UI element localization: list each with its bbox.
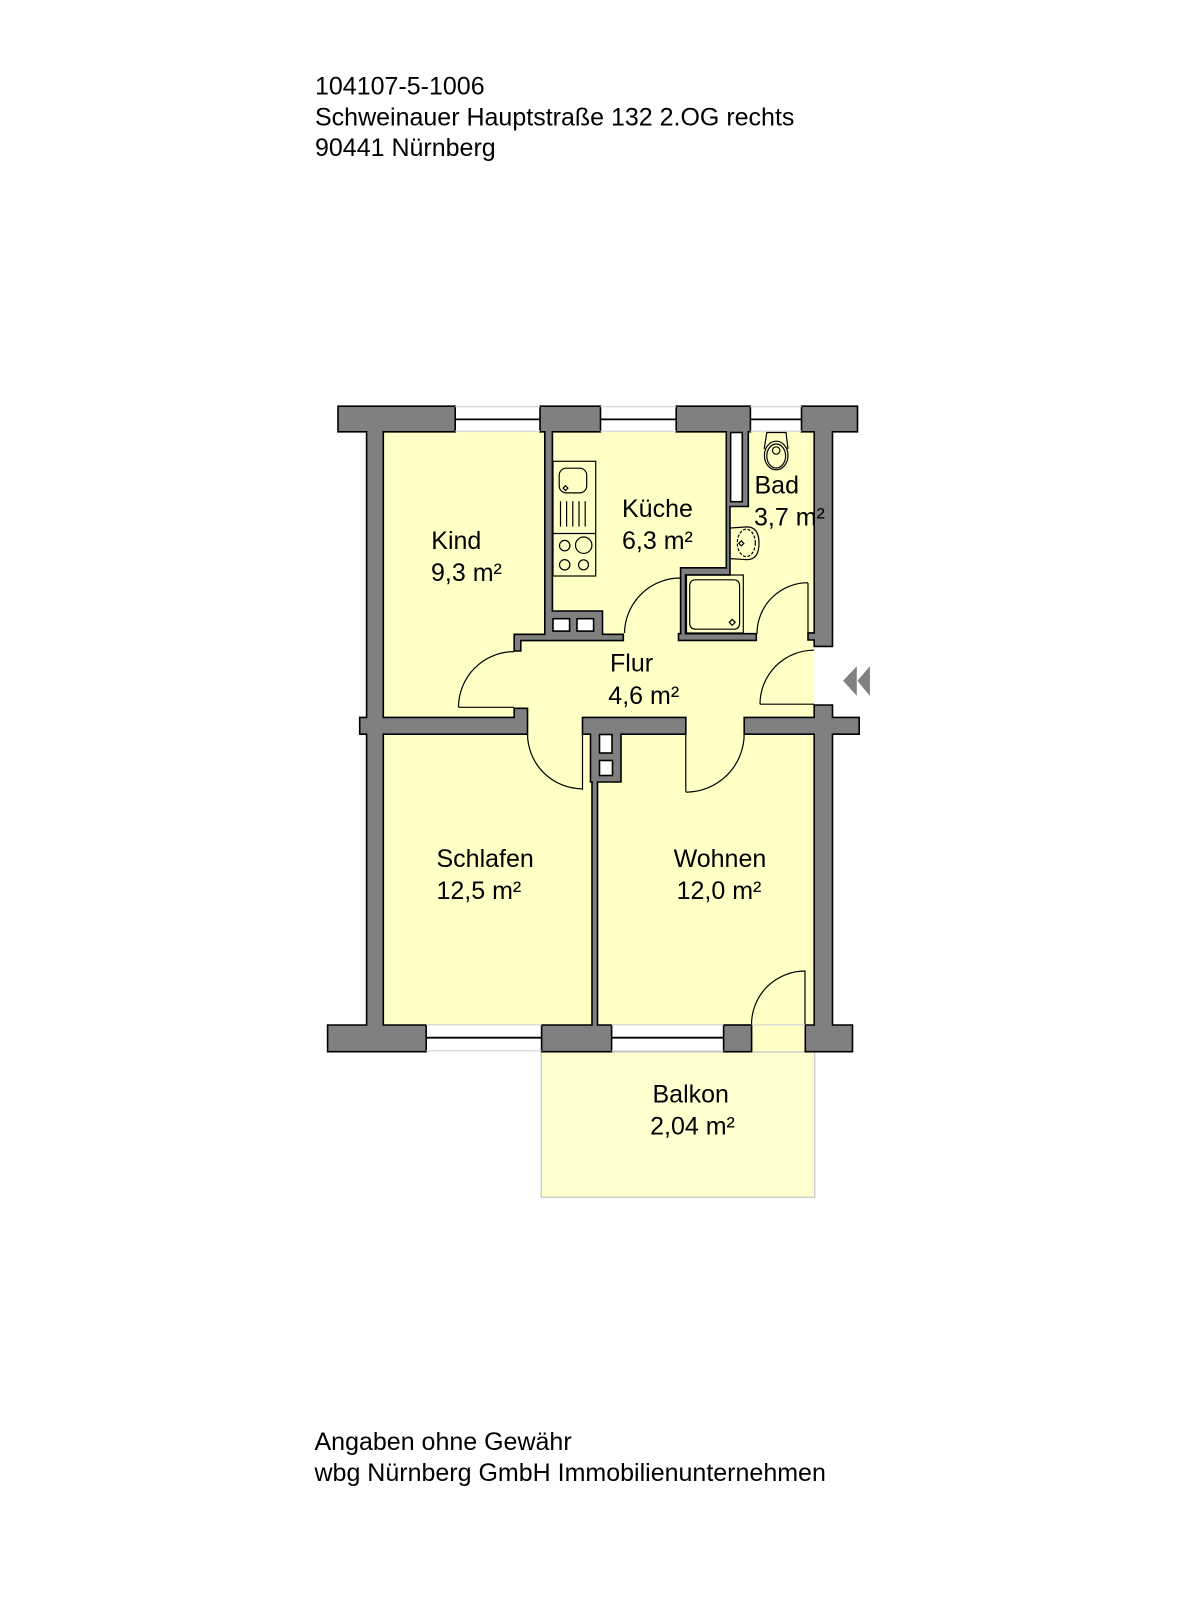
svg-text:Kind: Kind [431, 527, 481, 555]
svg-text:Angaben ohne Gewähr: Angaben ohne Gewähr [315, 1428, 572, 1456]
svg-text:Schweinauer Hauptstraße 132 2.: Schweinauer Hauptstraße 132 2.OG rechts [315, 104, 794, 132]
svg-text:2,04 m²: 2,04 m² [650, 1113, 735, 1141]
svg-text:Wohnen: Wohnen [674, 845, 767, 873]
svg-text:6,3 m²: 6,3 m² [622, 527, 693, 555]
svg-text:12,0 m²: 12,0 m² [677, 877, 762, 905]
svg-text:Flur: Flur [610, 650, 653, 678]
svg-text:wbg Nürnberg GmbH Immobilienun: wbg Nürnberg GmbH Immobilienunternehmen [314, 1459, 826, 1487]
svg-text:Bad: Bad [755, 471, 799, 499]
svg-text:104107-5-1006: 104107-5-1006 [315, 72, 485, 100]
svg-text:90441 Nürnberg: 90441 Nürnberg [315, 134, 496, 162]
svg-text:12,5 m²: 12,5 m² [437, 877, 522, 905]
svg-text:4,6 m²: 4,6 m² [608, 682, 679, 710]
svg-text:3,7 m²: 3,7 m² [754, 503, 825, 531]
svg-text:9,3 m²: 9,3 m² [431, 559, 502, 587]
svg-text:Schlafen: Schlafen [437, 845, 534, 873]
svg-text:Balkon: Balkon [653, 1081, 729, 1109]
svg-text:Küche: Küche [622, 495, 693, 523]
